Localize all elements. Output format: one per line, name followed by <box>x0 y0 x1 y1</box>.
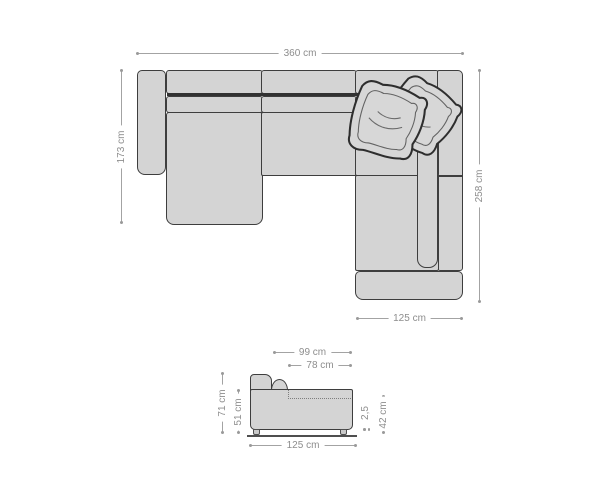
dimension-depth-total-label: 99 cm <box>294 347 331 359</box>
dimension-recamiere-width: 125 cm <box>357 318 462 319</box>
dimension-left-depth: 173 cm <box>121 70 122 223</box>
dimension-length: 125 cm <box>250 445 356 446</box>
dimension-seat-depth-label: 78 cm <box>301 360 338 372</box>
side-seat-dotted-horizontal <box>288 398 351 399</box>
seatback-roll-left <box>166 96 263 113</box>
dimension-height-total-label: 71 cm <box>217 384 229 421</box>
dimension-left-depth-label: 173 cm <box>116 125 128 168</box>
dimension-seat-depth: 78 cm <box>289 365 351 366</box>
dimension-depth-total: 99 cm <box>274 352 351 353</box>
chaise-pad-left <box>166 112 263 225</box>
dimension-length-label: 125 cm <box>282 440 325 452</box>
ground-line <box>247 435 357 437</box>
dimension-seat-height: 42 cm <box>383 396 384 433</box>
dimension-overall-width-label: 360 cm <box>279 48 322 60</box>
dimension-body-height-label: 51 cm <box>233 393 245 430</box>
dimension-seat-height-label: 42 cm <box>378 396 390 433</box>
dimension-body-height: 51 cm <box>238 390 239 433</box>
backrest-cushion-left <box>166 70 263 94</box>
dimension-recamiere-width-label: 125 cm <box>388 313 431 325</box>
dimension-clearance-dot-2 <box>368 428 371 431</box>
dimension-clearance-dot-1 <box>363 428 366 431</box>
sofa-dimension-diagram: 360 cm 173 cm 258 cm 125 cm 99 cm <box>0 0 600 500</box>
dimension-clearance-label: 2,5 <box>360 403 372 423</box>
pillows-icon <box>330 55 480 190</box>
side-body <box>250 389 353 430</box>
dimension-height-total: 71 cm <box>222 373 223 433</box>
left-armrest <box>137 70 166 175</box>
right-armrest <box>355 271 463 300</box>
dimension-overall-width: 360 cm <box>137 53 463 54</box>
